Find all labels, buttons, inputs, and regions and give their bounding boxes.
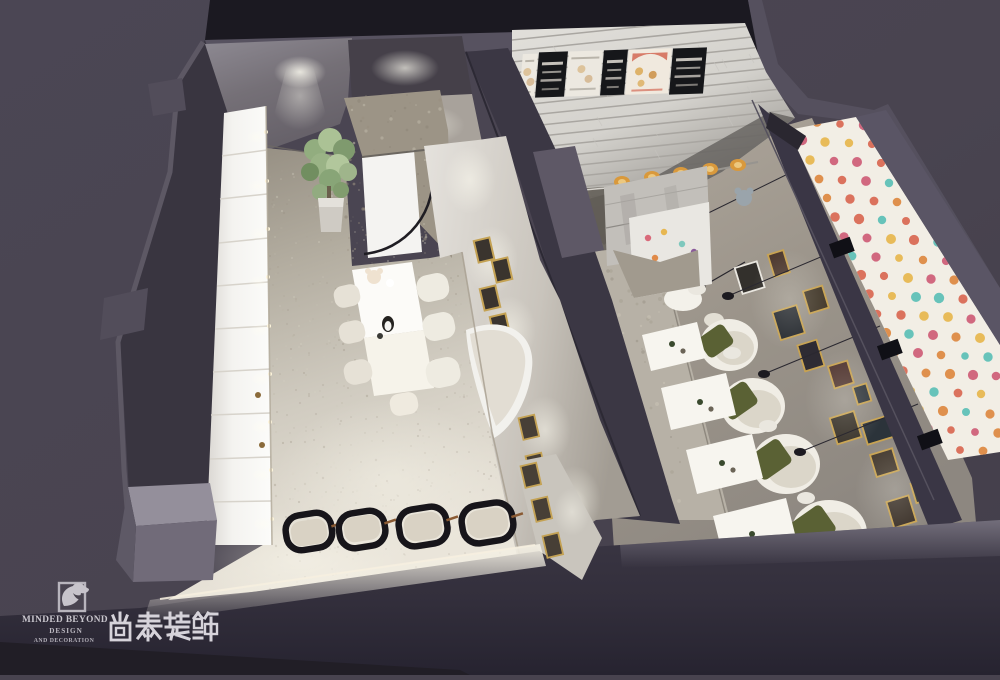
svg-text:AND DECORATION: AND DECORATION [34, 638, 95, 644]
svg-text:DESIGN: DESIGN [49, 627, 83, 635]
svg-text:MINDED BEYOND: MINDED BEYOND [22, 615, 108, 625]
